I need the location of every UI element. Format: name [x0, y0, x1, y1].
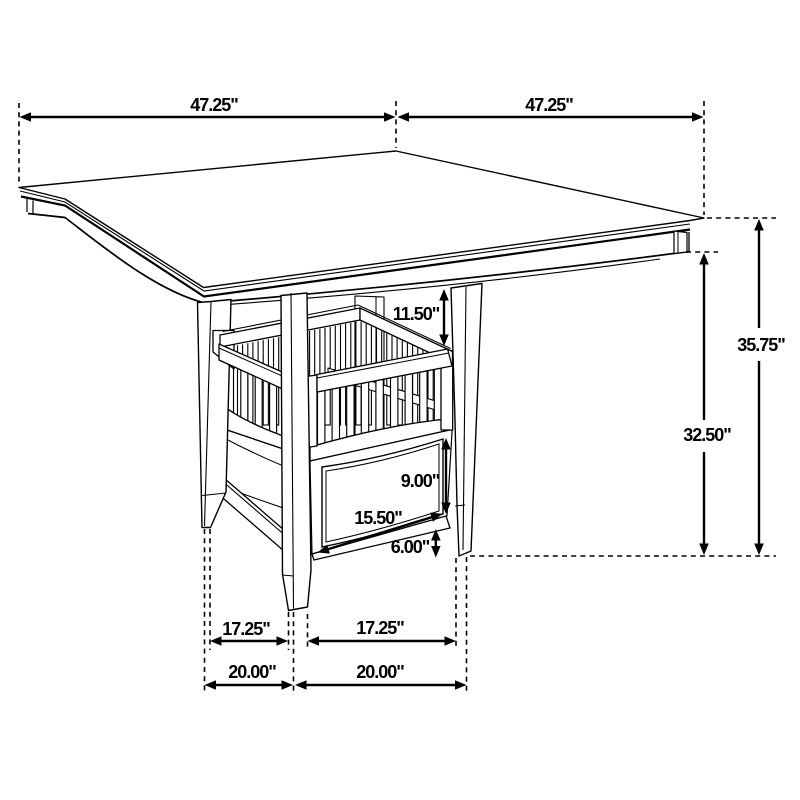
svg-text:32.50": 32.50"	[683, 425, 731, 445]
svg-text:17.25": 17.25"	[356, 618, 404, 638]
svg-text:11.50": 11.50"	[393, 304, 440, 324]
svg-text:47.25": 47.25"	[190, 95, 238, 115]
svg-text:9.00": 9.00"	[401, 471, 440, 491]
svg-text:20.00": 20.00"	[228, 662, 276, 682]
svg-text:20.00": 20.00"	[356, 662, 404, 682]
svg-text:35.75": 35.75"	[737, 335, 785, 355]
svg-text:6.00": 6.00"	[391, 537, 430, 557]
svg-text:17.25": 17.25"	[222, 619, 270, 639]
svg-text:47.25": 47.25"	[525, 95, 573, 115]
svg-text:15.50": 15.50"	[354, 508, 402, 528]
